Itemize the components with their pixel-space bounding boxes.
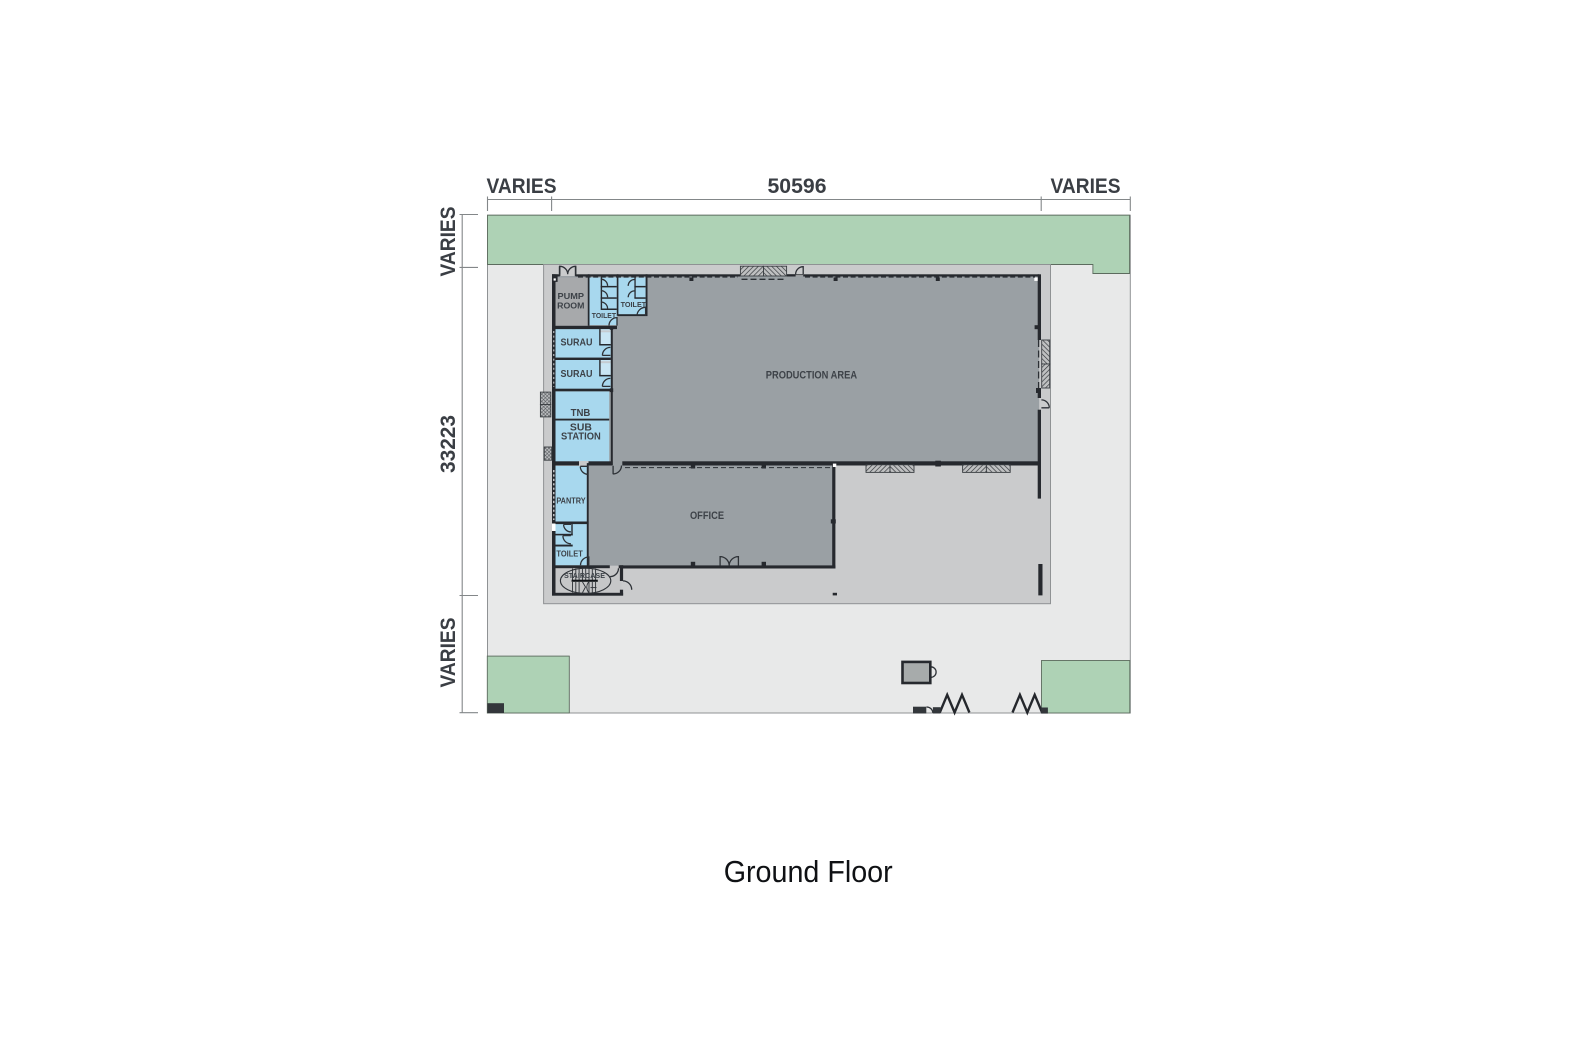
svg-text:OFFICE: OFFICE bbox=[690, 510, 724, 522]
svg-text:PRODUCTION AREA: PRODUCTION AREA bbox=[766, 370, 857, 382]
svg-text:SURAU: SURAU bbox=[561, 338, 593, 349]
svg-text:SURAU: SURAU bbox=[561, 369, 593, 380]
svg-text:TNB: TNB bbox=[571, 408, 591, 419]
svg-text:TOILET: TOILET bbox=[556, 550, 583, 559]
svg-text:50596: 50596 bbox=[768, 174, 827, 198]
svg-text:PANTRY: PANTRY bbox=[556, 496, 586, 506]
svg-text:ROOM: ROOM bbox=[557, 301, 584, 311]
svg-text:VARIES: VARIES bbox=[436, 618, 460, 688]
svg-text:TOILET: TOILET bbox=[592, 311, 617, 320]
svg-text:STATION: STATION bbox=[561, 431, 601, 442]
svg-text:STAIRCASE: STAIRCASE bbox=[564, 571, 605, 580]
svg-text:VARIES: VARIES bbox=[487, 174, 557, 198]
svg-text:VARIES: VARIES bbox=[1051, 174, 1121, 198]
svg-text:33223: 33223 bbox=[436, 415, 460, 473]
svg-text:Ground Floor: Ground Floor bbox=[724, 854, 893, 889]
svg-text:VARIES: VARIES bbox=[436, 207, 460, 277]
svg-text:PUMP: PUMP bbox=[558, 291, 585, 301]
svg-text:TOILET: TOILET bbox=[621, 300, 647, 309]
